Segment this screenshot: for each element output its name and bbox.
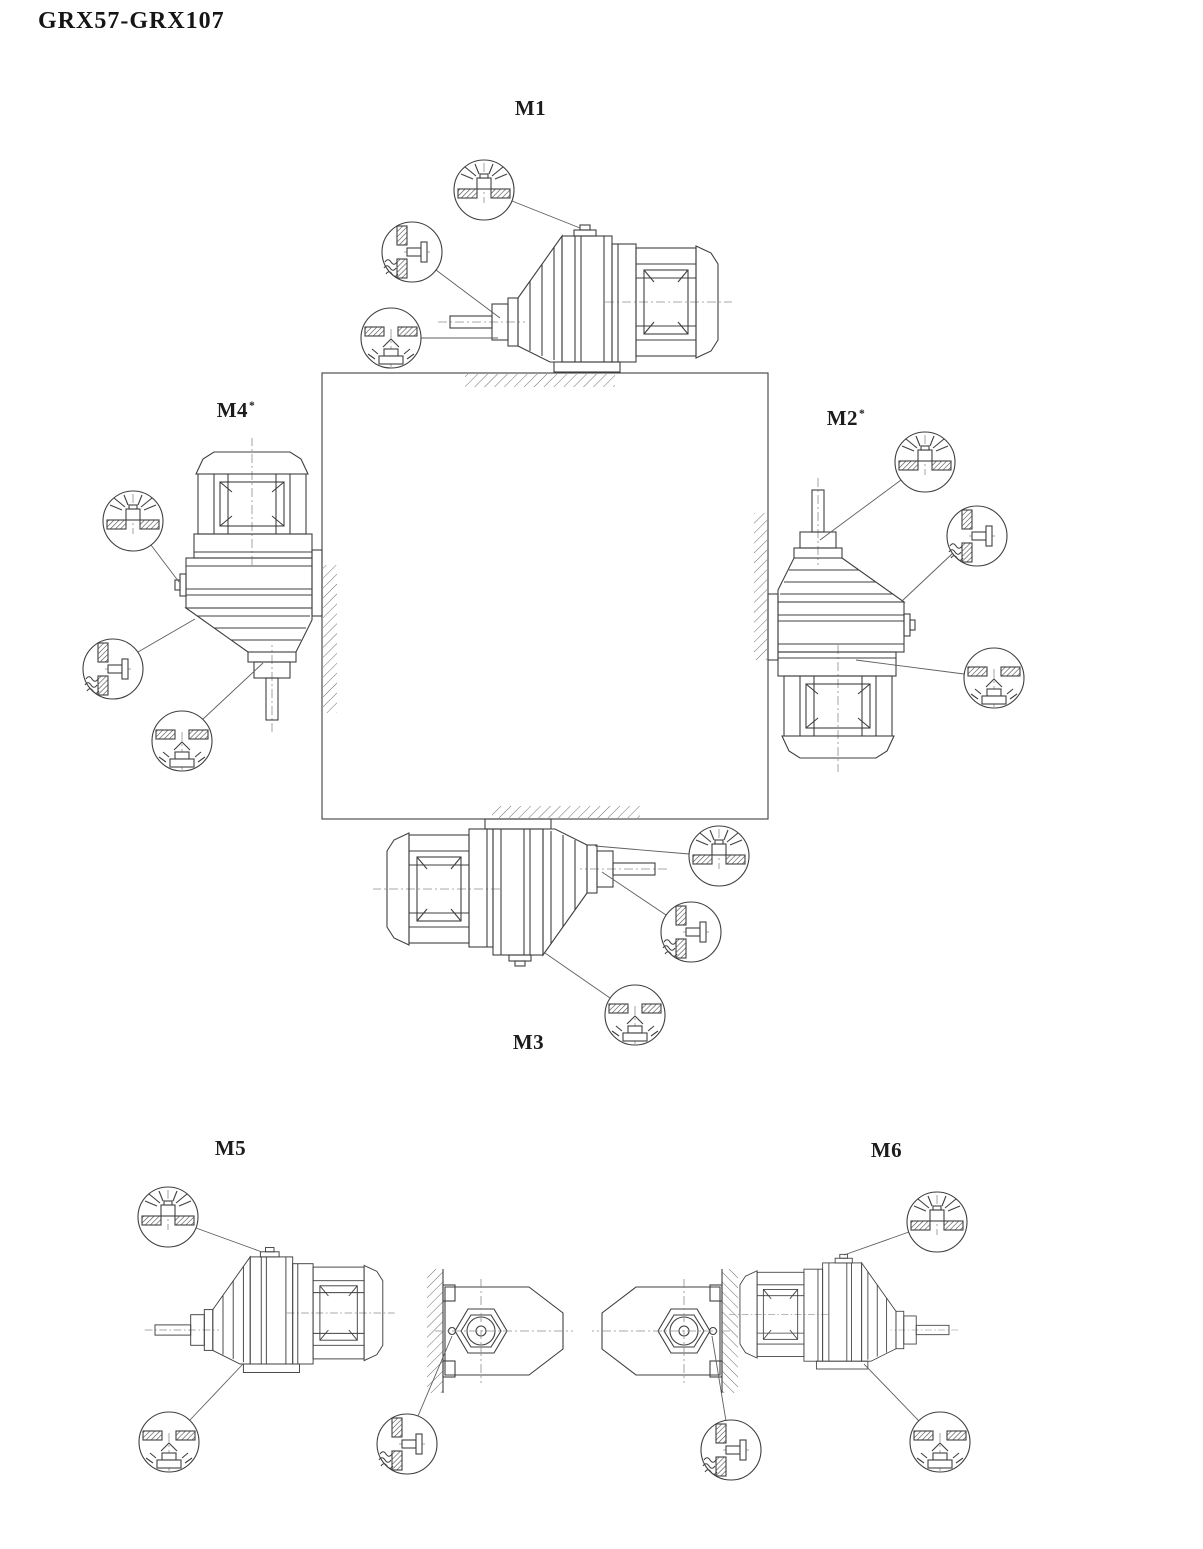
breather-plug-icon-m6	[907, 1192, 967, 1252]
oil-level-plug-icon-m5	[377, 1414, 437, 1474]
breather-plug-icon-m4	[103, 491, 163, 551]
gearmotor-m2-wall-mounted-shaft-up	[768, 478, 915, 772]
breather-plug-icon-m1	[454, 160, 514, 220]
oil-level-plug-icon-m1	[382, 222, 442, 282]
wall-hatch-left	[323, 565, 337, 713]
breather-plug-icon-m5	[138, 1187, 198, 1247]
gearmotor-m1-foot-mounted	[438, 225, 732, 372]
gearmotor-m6-side-view	[729, 1254, 958, 1369]
gearmotor-m5-side-view	[145, 1248, 395, 1373]
gearmotor-m4-wall-mounted-shaft-down	[175, 438, 322, 732]
oil-drain-plug-icon-m1	[361, 308, 421, 368]
oil-level-plug-icon-m2	[947, 506, 1007, 566]
oil-drain-plug-icon-m3	[605, 985, 665, 1045]
floor-hatch-top	[465, 374, 615, 387]
breather-plug-icon-m2	[895, 432, 955, 492]
oil-drain-plug-icon-m2	[964, 648, 1024, 708]
oil-drain-plug-icon-m6	[910, 1412, 970, 1472]
wall-hatch-right	[754, 513, 767, 660]
oil-level-plug-icon-m4	[83, 639, 143, 699]
oil-level-plug-icon-m3	[661, 902, 721, 962]
housing-square	[322, 373, 768, 819]
oil-level-plug-icon-m6	[701, 1420, 761, 1480]
mounting-positions-diagram	[0, 0, 1203, 1549]
oil-drain-plug-icon-m4	[152, 711, 212, 771]
ceiling-hatch-bottom	[492, 806, 640, 818]
breather-plug-icon-m3	[689, 826, 749, 886]
oil-drain-plug-icon-m5	[139, 1412, 199, 1472]
gearmotor-m6-axial-view	[592, 1269, 738, 1393]
gearmotor-m5-axial-view	[427, 1269, 573, 1393]
gearmotor-m3-ceiling-mounted	[373, 819, 667, 966]
page: GRX57-GRX107 M1 M2* M3 M4* M5 M6	[0, 0, 1203, 1549]
